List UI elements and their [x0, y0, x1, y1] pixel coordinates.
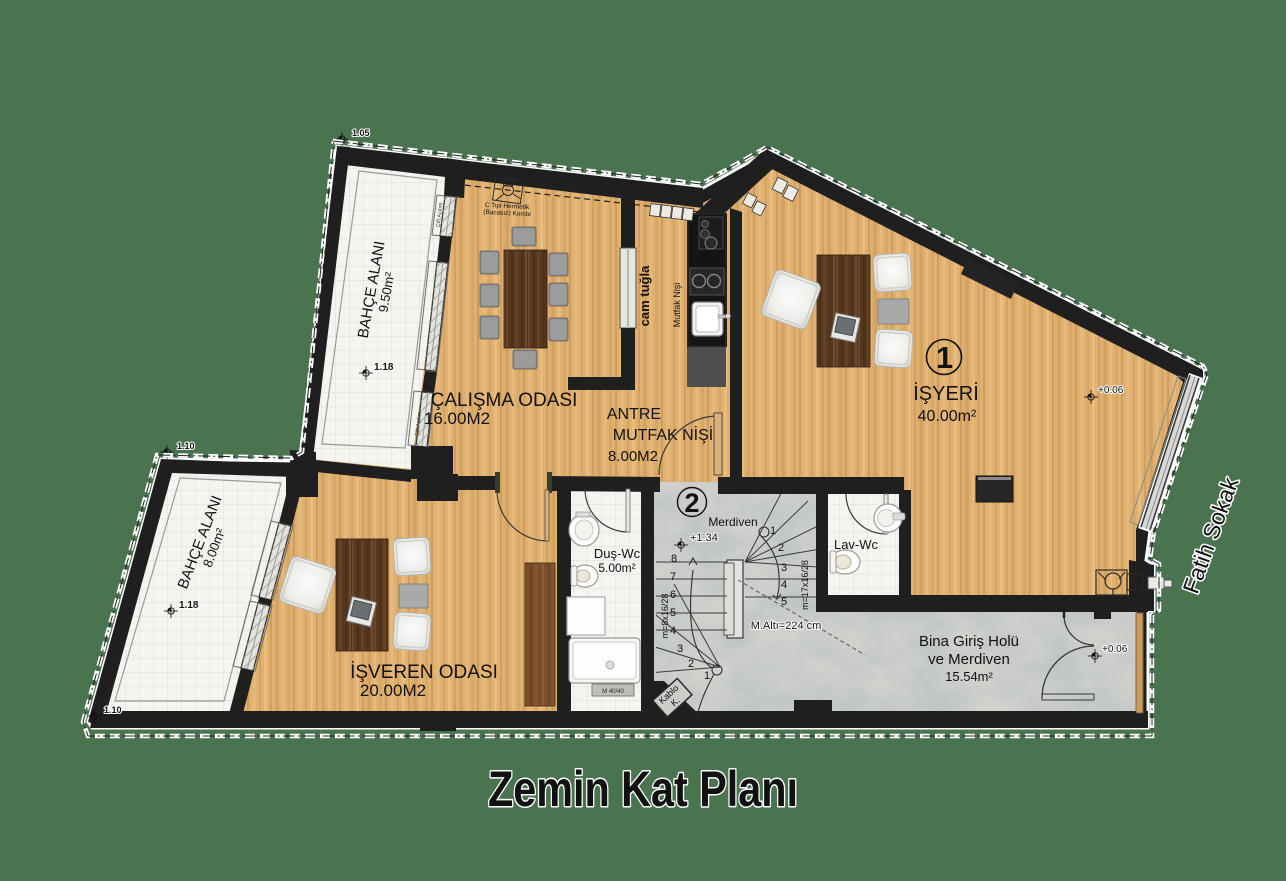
svg-text:5: 5: [781, 596, 787, 608]
svg-text:4: 4: [670, 625, 676, 637]
svg-text:Lav-Wc: Lav-Wc: [834, 537, 879, 552]
svg-text:1: 1: [704, 670, 710, 682]
svg-text:+1.34: +1.34: [690, 532, 718, 544]
svg-text:2: 2: [688, 658, 694, 670]
svg-text:+0.06: +0.06: [1098, 385, 1124, 396]
svg-text:Bina Giriş Holü: Bina Giriş Holü: [919, 633, 1019, 650]
svg-text:İŞYERİ: İŞYERİ: [913, 382, 979, 405]
svg-text:2: 2: [778, 542, 784, 554]
svg-text:20.00M2: 20.00M2: [360, 681, 426, 700]
svg-text:1.10: 1.10: [177, 441, 195, 451]
svg-text:5: 5: [670, 607, 676, 619]
svg-text:1.18: 1.18: [179, 600, 199, 611]
svg-text:6: 6: [670, 589, 676, 601]
svg-text:M.Altı=224 cm: M.Altı=224 cm: [751, 620, 822, 632]
svg-text:ÇALIŞMA ODASI: ÇALIŞMA ODASI: [431, 390, 578, 411]
svg-text:+0.06: +0.06: [1102, 644, 1128, 655]
svg-text:4: 4: [781, 579, 787, 591]
svg-text:ANTRE: ANTRE: [607, 406, 661, 423]
svg-text:7: 7: [670, 571, 676, 583]
svg-text:5.00m²: 5.00m²: [598, 561, 635, 575]
svg-text:m=17x16/28: m=17x16/28: [800, 560, 810, 610]
svg-text:Merdiven: Merdiven: [708, 515, 757, 529]
svg-text:Duş-Wc: Duş-Wc: [594, 546, 641, 561]
svg-text:15.54m²: 15.54m²: [945, 669, 993, 684]
svg-text:16.00M2: 16.00M2: [424, 409, 490, 428]
svg-text:Zemin Kat Planı: Zemin Kat Planı: [488, 761, 798, 817]
svg-text:1: 1: [770, 525, 776, 537]
svg-text:1.18: 1.18: [374, 362, 394, 373]
svg-text:8: 8: [671, 553, 677, 565]
svg-text:İŞVEREN ODASI: İŞVEREN ODASI: [350, 662, 498, 683]
svg-text:Mutfak Nişi: Mutfak Nişi: [672, 283, 682, 328]
svg-text:M 40/40: M 40/40: [602, 689, 624, 695]
svg-text:3: 3: [677, 643, 683, 655]
svg-text:m=8x16/28: m=8x16/28: [660, 594, 670, 639]
svg-text:MUTFAK NİŞİ: MUTFAK NİŞİ: [613, 425, 713, 444]
svg-text:2: 2: [684, 488, 699, 518]
svg-text:1: 1: [936, 340, 953, 375]
svg-text:cam tuğla: cam tuğla: [637, 265, 652, 326]
svg-text:40.00m²: 40.00m²: [918, 408, 977, 425]
svg-text:ve Merdiven: ve Merdiven: [928, 651, 1010, 668]
svg-text:8.00M2: 8.00M2: [608, 448, 658, 465]
svg-text:1.05: 1.05: [352, 128, 370, 138]
svg-text:1.10: 1.10: [104, 705, 122, 715]
svg-text:3: 3: [781, 562, 787, 574]
